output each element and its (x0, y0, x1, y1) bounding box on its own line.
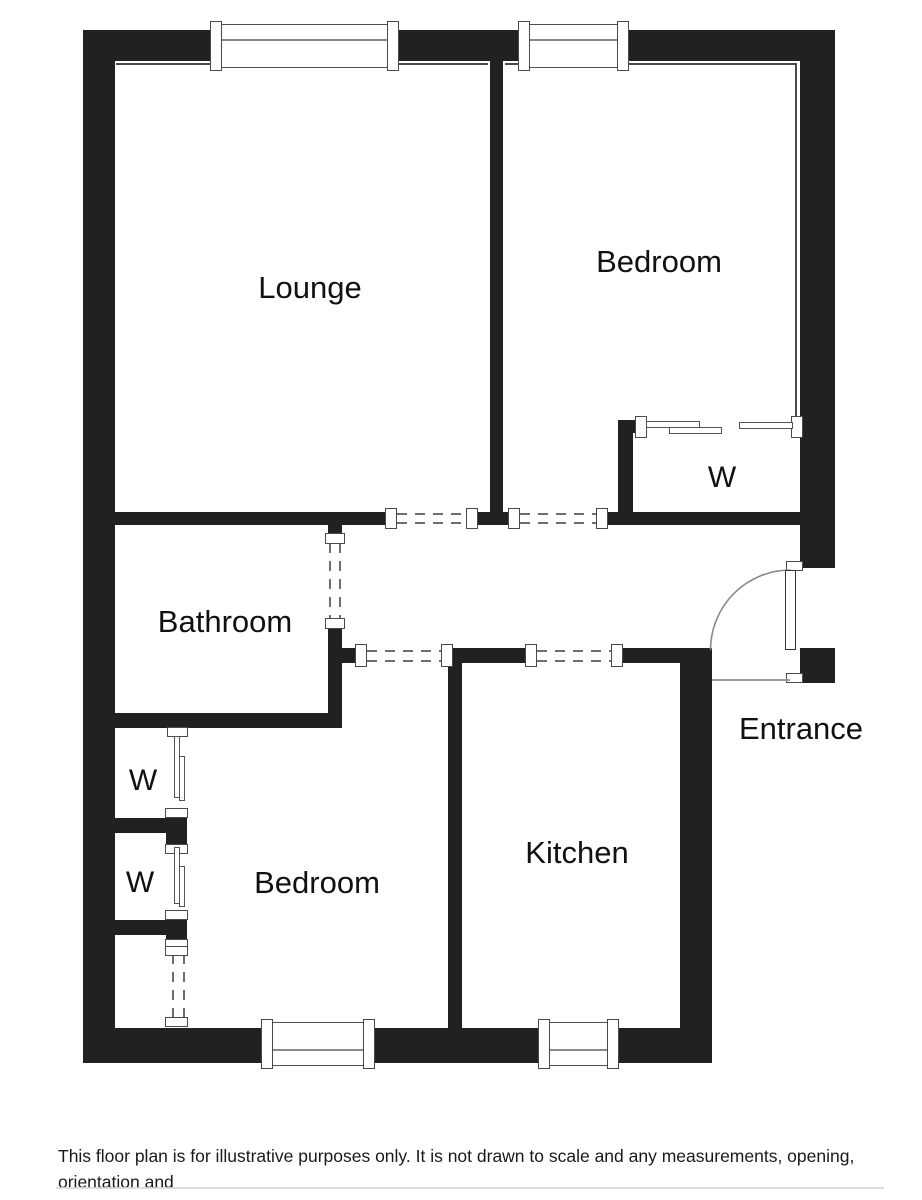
opening-bathroom-door (329, 543, 331, 622)
door-jamb (325, 533, 345, 544)
door-jamb (508, 508, 520, 529)
door-jamb (441, 644, 453, 667)
window-glass-line (213, 39, 397, 41)
door-jamb (165, 808, 188, 818)
entrance-door-arc (704, 564, 796, 656)
opening-alcove (172, 954, 174, 1018)
window-glass-line (521, 39, 627, 41)
sliding-door-panel (179, 756, 185, 801)
entrance-threshold-line (712, 679, 790, 681)
door-jamb (466, 508, 478, 529)
wall-kitchen-left (448, 663, 462, 1028)
door-jamb (355, 644, 367, 667)
room-label-wardrobe-top: W (708, 461, 736, 495)
room-label-bedroom-bottom: Bedroom (254, 865, 380, 901)
entrance-door-leaf (785, 570, 796, 650)
window-jamb (261, 1019, 273, 1069)
wall-wardrobe-top-left (618, 420, 633, 525)
wall-right-upper (800, 30, 835, 568)
wall-face-line (398, 63, 488, 65)
room-label-bedroom-top: Bedroom (596, 244, 722, 280)
door-jamb (786, 673, 803, 683)
wall-lounge-bedroom-divider (490, 58, 503, 513)
sliding-door-panel (669, 427, 722, 434)
wall-left (83, 30, 115, 1063)
wall-face-line (628, 63, 795, 65)
opening-bathroom-door (339, 543, 341, 622)
opening-lounge-door (397, 513, 468, 515)
room-label-wardrobe-left-2: W (126, 866, 154, 900)
room-label-entrance: Entrance (739, 711, 863, 747)
opening-alcove (183, 954, 185, 1018)
window-jamb (617, 21, 629, 71)
sliding-door-panel (739, 422, 793, 429)
opening-bedroom-top-door (520, 522, 597, 524)
window-lounge (212, 24, 398, 68)
window-jamb (363, 1019, 375, 1069)
wall-top (83, 30, 833, 61)
wall-right-lower (800, 648, 835, 683)
wall-corridor-bottom-mid (443, 648, 537, 663)
opening-lounge-door (397, 522, 468, 524)
window-jamb (518, 21, 530, 71)
window-jamb (607, 1019, 619, 1069)
floor-plan: Lounge Bedroom W Bathroom Entrance Kitch… (0, 0, 922, 1200)
wall-closet-stub-1 (112, 818, 168, 833)
opening-bedroom-bottom-door (367, 660, 443, 662)
disclaimer-line-2: floor areas are all approximate. No deta… (58, 1195, 904, 1200)
door-jamb (385, 508, 397, 529)
window-jamb (387, 21, 399, 71)
wall-closet-post-1 (166, 818, 187, 844)
opening-kitchen-door (537, 650, 613, 652)
sliding-door-panel (179, 866, 185, 907)
door-jamb (525, 644, 537, 667)
wall-corridor-top-a (112, 512, 397, 525)
door-jamb (165, 910, 188, 920)
door-jamb (596, 508, 608, 529)
room-label-kitchen: Kitchen (525, 835, 628, 871)
room-label-wardrobe-left-1: W (129, 764, 157, 798)
room-label-lounge: Lounge (258, 270, 361, 306)
door-jamb (165, 946, 188, 956)
wall-face-line (795, 63, 797, 418)
window-bedroom-bottom (263, 1022, 374, 1066)
window-jamb (538, 1019, 550, 1069)
wall-bathroom-bottom (112, 713, 342, 728)
door-jamb (325, 618, 345, 629)
disclaimer-text: This floor plan is for illustrative purp… (58, 1144, 904, 1200)
opening-bedroom-top-door (520, 513, 597, 515)
window-jamb (210, 21, 222, 71)
wall-closet-stub-2 (112, 920, 168, 935)
room-label-bathroom: Bathroom (158, 604, 292, 640)
opening-bedroom-bottom-door (367, 650, 443, 652)
door-jamb (165, 1017, 188, 1027)
window-bedroom-top (520, 24, 628, 68)
wall-kitchen-right (680, 648, 712, 1063)
wall-face-line (116, 63, 213, 65)
window-glass-line (264, 1049, 373, 1051)
opening-kitchen-door (537, 660, 613, 662)
window-glass-line (541, 1049, 617, 1051)
door-jamb (611, 644, 623, 667)
cropped-text-line (56, 1187, 884, 1189)
